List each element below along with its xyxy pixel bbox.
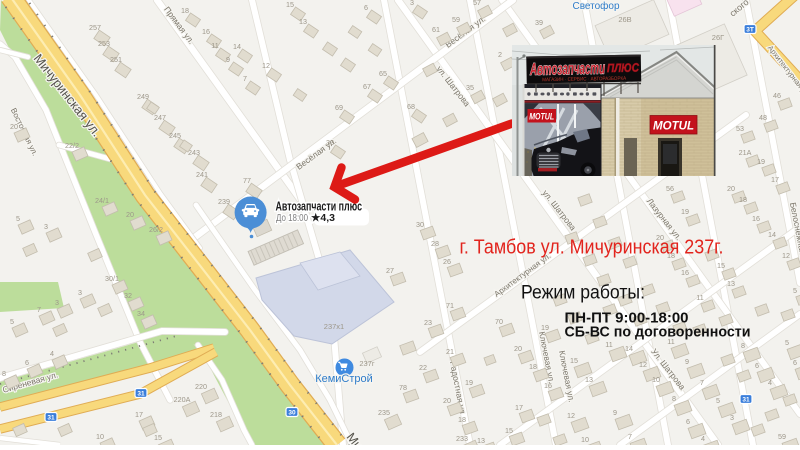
svg-text:8: 8 <box>672 394 676 403</box>
svg-text:57: 57 <box>473 0 481 7</box>
svg-text:23: 23 <box>424 318 432 327</box>
svg-text:26/2: 26/2 <box>149 225 163 234</box>
svg-text:48: 48 <box>759 113 767 122</box>
svg-text:4: 4 <box>50 349 54 358</box>
svg-text:233: 233 <box>456 434 468 443</box>
svg-text:65: 65 <box>379 69 387 78</box>
svg-text:30: 30 <box>288 410 296 417</box>
svg-text:26В: 26В <box>618 15 631 24</box>
svg-text:16: 16 <box>752 214 760 223</box>
svg-text:53: 53 <box>736 124 744 133</box>
svg-text:68: 68 <box>407 102 415 111</box>
svg-text:7: 7 <box>700 378 704 387</box>
svg-text:3: 3 <box>44 222 48 231</box>
svg-text:239: 239 <box>218 197 230 206</box>
svg-text:18: 18 <box>458 415 466 424</box>
svg-text:19: 19 <box>757 157 765 166</box>
svg-text:4: 4 <box>701 434 705 443</box>
svg-text:12: 12 <box>262 61 270 70</box>
svg-text:71: 71 <box>446 301 454 310</box>
svg-text:11: 11 <box>696 293 703 302</box>
svg-text:★4,3: ★4,3 <box>311 212 335 224</box>
svg-text:5: 5 <box>16 214 20 223</box>
svg-text:3Т: 3Т <box>746 27 754 34</box>
svg-text:7: 7 <box>243 74 247 83</box>
svg-text:31: 31 <box>47 415 55 422</box>
svg-text:33: 33 <box>326 138 334 147</box>
svg-text:15: 15 <box>286 0 294 9</box>
svg-text:11: 11 <box>605 340 612 349</box>
svg-text:14: 14 <box>233 42 241 51</box>
svg-text:220А: 220А <box>174 395 191 404</box>
svg-text:21: 21 <box>446 347 454 356</box>
svg-text:7: 7 <box>37 305 41 314</box>
svg-text:22: 22 <box>419 363 427 372</box>
svg-text:31: 31 <box>742 397 750 404</box>
svg-text:15: 15 <box>717 261 725 270</box>
svg-text:7: 7 <box>628 432 632 441</box>
svg-text:5: 5 <box>785 338 789 347</box>
svg-text:35: 35 <box>466 83 474 92</box>
svg-text:59: 59 <box>452 15 460 24</box>
svg-text:16: 16 <box>202 27 210 36</box>
svg-text:11: 11 <box>211 41 218 50</box>
svg-text:67: 67 <box>363 82 371 91</box>
svg-text:19: 19 <box>681 207 689 216</box>
svg-text:237г: 237г <box>359 359 375 368</box>
svg-text:249: 249 <box>137 92 149 101</box>
svg-text:13: 13 <box>299 17 307 26</box>
svg-text:15: 15 <box>505 426 513 435</box>
svg-text:24/1: 24/1 <box>95 196 109 205</box>
svg-text:12: 12 <box>782 251 790 260</box>
svg-text:До 18:00: До 18:00 <box>276 212 308 224</box>
svg-text:26Г: 26Г <box>712 33 724 42</box>
svg-text:34: 34 <box>137 309 145 318</box>
svg-text:12: 12 <box>567 411 575 420</box>
svg-text:3: 3 <box>78 288 82 297</box>
svg-text:3: 3 <box>410 0 414 7</box>
svg-text:20: 20 <box>443 396 451 405</box>
svg-text:20: 20 <box>727 184 735 193</box>
svg-text:59: 59 <box>778 432 786 441</box>
svg-text:56: 56 <box>666 184 674 193</box>
svg-text:9: 9 <box>226 55 230 64</box>
svg-text:16: 16 <box>544 381 552 390</box>
svg-text:17: 17 <box>515 403 523 412</box>
svg-text:СБ-ВС по договоренности: СБ-ВС по договоренности <box>565 324 751 341</box>
svg-text:22/2: 22/2 <box>65 141 79 150</box>
svg-text:13: 13 <box>477 436 485 445</box>
svg-text:6: 6 <box>755 361 759 370</box>
svg-text:245: 245 <box>169 131 181 140</box>
svg-text:26: 26 <box>443 257 451 266</box>
svg-text:10: 10 <box>96 432 104 441</box>
svg-text:241: 241 <box>196 170 208 179</box>
svg-text:г. Тамбов ул. Мичуринская 237г: г. Тамбов ул. Мичуринская 237г. <box>460 236 724 259</box>
svg-text:39: 39 <box>535 18 543 27</box>
svg-text:20: 20 <box>10 122 18 131</box>
svg-text:21А: 21А <box>739 148 752 157</box>
svg-text:18: 18 <box>739 195 747 204</box>
svg-text:10: 10 <box>581 435 589 444</box>
svg-text:78: 78 <box>399 383 407 392</box>
svg-text:3: 3 <box>55 298 59 307</box>
svg-text:20: 20 <box>514 344 522 353</box>
svg-text:6: 6 <box>25 358 29 367</box>
svg-text:КемиСтрой: КемиСтрой <box>315 373 373 385</box>
svg-text:17: 17 <box>771 175 779 184</box>
svg-text:218: 218 <box>210 410 222 419</box>
svg-text:4: 4 <box>768 378 772 387</box>
svg-text:3: 3 <box>730 413 734 422</box>
svg-text:251: 251 <box>110 55 122 64</box>
svg-text:9: 9 <box>685 357 689 366</box>
svg-text:32: 32 <box>124 291 132 300</box>
svg-text:30/1: 30/1 <box>105 274 119 283</box>
svg-text:5: 5 <box>716 396 720 405</box>
svg-text:14: 14 <box>625 344 633 353</box>
svg-text:27: 27 <box>386 266 394 275</box>
svg-text:15: 15 <box>570 356 578 365</box>
svg-text:8: 8 <box>741 341 745 350</box>
svg-text:237х1: 237х1 <box>324 322 344 331</box>
svg-text:18: 18 <box>529 362 537 371</box>
svg-text:220: 220 <box>195 382 207 391</box>
svg-text:61: 61 <box>432 25 440 34</box>
svg-text:30: 30 <box>416 220 424 229</box>
svg-text:MOTUL: MOTUL <box>653 119 694 133</box>
svg-text:235: 235 <box>378 408 390 417</box>
svg-text:5: 5 <box>793 286 797 295</box>
svg-text:13: 13 <box>727 279 735 288</box>
svg-text:13: 13 <box>585 375 593 384</box>
svg-text:253: 253 <box>98 39 110 48</box>
svg-text:20: 20 <box>126 210 134 219</box>
svg-text:247: 247 <box>154 113 166 122</box>
svg-text:18: 18 <box>181 6 189 15</box>
svg-text:69: 69 <box>335 103 343 112</box>
svg-text:257: 257 <box>89 23 101 32</box>
svg-text:Режим работы:: Режим работы: <box>521 283 645 304</box>
svg-text:2: 2 <box>498 50 502 59</box>
svg-text:19: 19 <box>465 378 473 387</box>
svg-text:ПЛЮС: ПЛЮС <box>607 61 640 76</box>
svg-text:17: 17 <box>135 410 143 419</box>
svg-text:28: 28 <box>431 239 439 248</box>
svg-text:12: 12 <box>639 360 647 369</box>
svg-text:Светофор: Светофор <box>572 0 619 12</box>
svg-text:6: 6 <box>793 358 797 367</box>
svg-text:5: 5 <box>10 317 14 326</box>
svg-text:70: 70 <box>495 317 503 326</box>
svg-text:77: 77 <box>243 176 251 185</box>
svg-text:6: 6 <box>364 3 368 12</box>
svg-text:16: 16 <box>681 268 689 277</box>
svg-text:9: 9 <box>613 408 617 417</box>
svg-text:6: 6 <box>686 417 690 426</box>
svg-text:31: 31 <box>137 391 145 398</box>
svg-text:46: 46 <box>773 91 781 100</box>
svg-text:19: 19 <box>541 323 549 332</box>
svg-text:14: 14 <box>768 230 776 239</box>
svg-text:8: 8 <box>2 369 6 378</box>
svg-text:15: 15 <box>154 433 162 442</box>
svg-text:MOTUL: MOTUL <box>529 112 554 122</box>
svg-text:10: 10 <box>652 375 660 384</box>
